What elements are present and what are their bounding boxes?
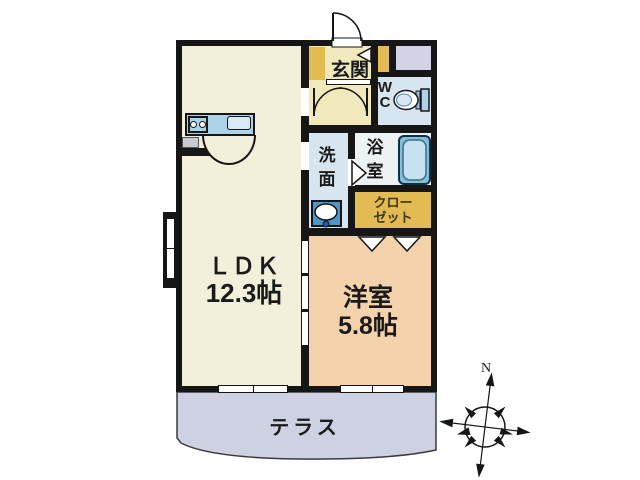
room-ldk xyxy=(182,46,301,386)
kitchen-sink-icon xyxy=(227,116,251,130)
bathroom-label: 浴室 xyxy=(365,136,385,184)
window-western xyxy=(340,385,373,393)
window-ldk xyxy=(253,385,288,393)
shoe-cabinet xyxy=(309,47,325,80)
ldk-size-label: 12.3帖 xyxy=(189,273,299,310)
opening-washroom xyxy=(301,142,309,170)
refrigerator-space xyxy=(182,137,199,148)
compass-north-label: N xyxy=(478,361,494,377)
stove-burner-icon xyxy=(190,121,197,128)
washroom-label: 洗面 xyxy=(317,144,337,192)
storage-block xyxy=(378,46,389,72)
floor-plan: ＬＤＫ 12.3帖 洋室 5.8帖 玄関 WC 洗面 浴室 クローゼット テラス… xyxy=(0,0,640,480)
entrance-label: 玄関 xyxy=(327,55,373,82)
sliding-door-pane xyxy=(301,275,309,310)
window-ldk xyxy=(218,385,254,393)
bay-window-pane xyxy=(166,248,175,279)
window-western xyxy=(372,385,404,393)
western-room-size-label: 5.8帖 xyxy=(313,306,423,342)
closet-label: クローゼット xyxy=(357,195,429,225)
terrace-label: テラス xyxy=(255,411,355,440)
sliding-door-pane xyxy=(301,240,309,274)
wc-label: WC xyxy=(376,80,394,110)
compass-icon xyxy=(435,369,535,480)
pipe-space xyxy=(396,46,431,70)
sliding-door-pane xyxy=(301,311,309,346)
opening-bathroom xyxy=(348,159,355,186)
stove-burner-icon xyxy=(199,121,206,128)
bay-window-pane xyxy=(166,218,175,249)
opening-hall-ldk xyxy=(301,88,309,116)
